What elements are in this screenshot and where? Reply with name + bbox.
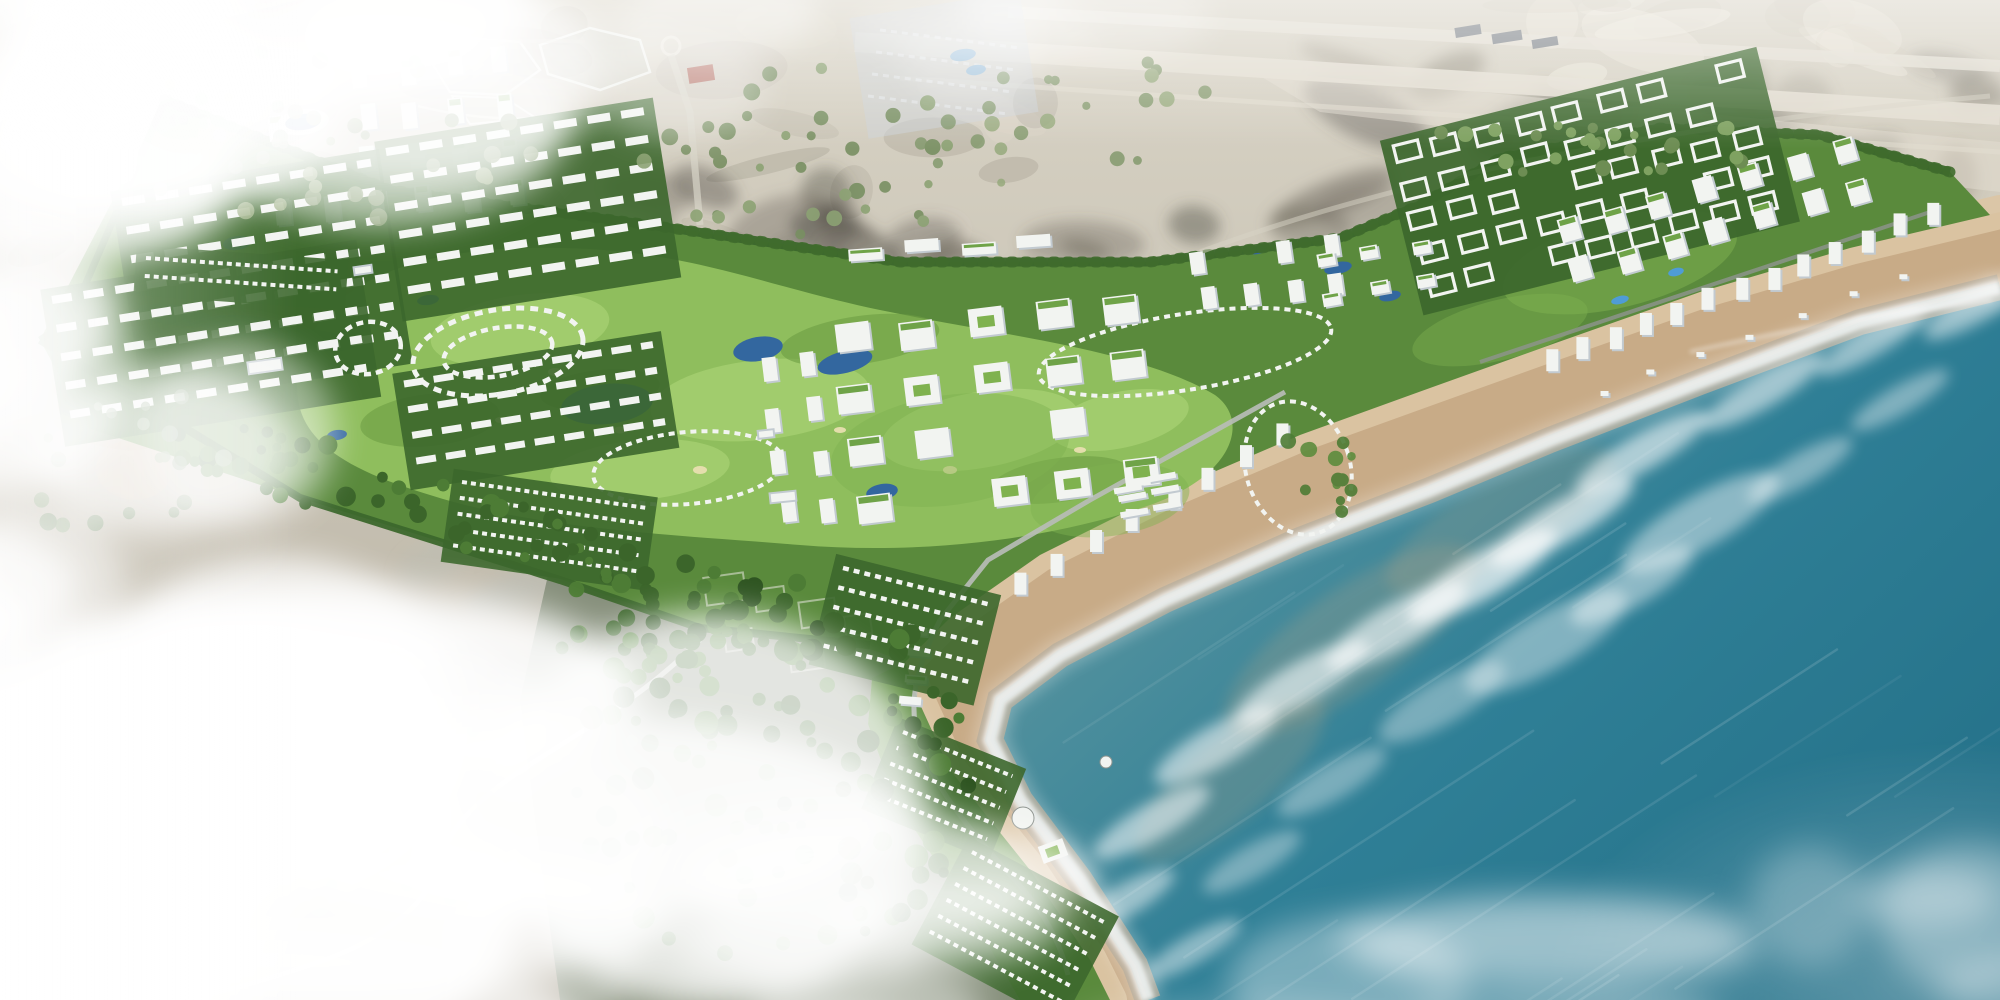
tree [788, 574, 806, 592]
tree [1518, 167, 1528, 177]
tree [712, 211, 725, 224]
building [1014, 573, 1026, 595]
building [1670, 303, 1682, 325]
tree [953, 713, 964, 724]
civic-building [758, 429, 775, 439]
building [1850, 291, 1858, 296]
building [1576, 337, 1588, 359]
building [1646, 369, 1654, 374]
building-courtyard [977, 315, 995, 328]
tree [879, 181, 891, 193]
building [1601, 391, 1609, 396]
building-courtyard [913, 384, 931, 397]
tree [1328, 451, 1343, 466]
building-courtyard [1063, 477, 1081, 490]
tree [1730, 151, 1744, 165]
tree [1644, 166, 1653, 175]
tree [1110, 151, 1125, 166]
tree [839, 189, 851, 201]
building [1016, 234, 1051, 248]
building [813, 450, 830, 476]
sand-bunker [1074, 447, 1086, 453]
building [761, 356, 778, 382]
building [1702, 288, 1714, 310]
tree [927, 686, 940, 699]
tree [1550, 152, 1562, 164]
tree [1280, 433, 1296, 449]
building [914, 427, 951, 459]
aerial-masterplan-rendering: Aerial rendering of a coastal golf-resor… [0, 0, 2000, 1000]
building [1240, 445, 1252, 467]
building [769, 449, 786, 475]
tree [826, 210, 842, 226]
building [1797, 254, 1809, 276]
building [1696, 352, 1704, 357]
tree [997, 179, 1005, 187]
tree [796, 162, 807, 173]
tree [776, 593, 793, 610]
tree [823, 612, 845, 634]
tree [929, 737, 942, 750]
resort-plaza-circle [1012, 807, 1034, 829]
tree [697, 579, 712, 594]
tree [849, 183, 865, 199]
building [1745, 335, 1753, 340]
building [1862, 231, 1874, 253]
tree [924, 180, 932, 188]
scene-svg: Aerial rendering of a coastal golf-resor… [0, 0, 2000, 1000]
tree [708, 566, 721, 579]
tree [676, 554, 695, 573]
tree [1336, 496, 1345, 505]
building [819, 498, 836, 524]
tree [745, 577, 763, 595]
building [1768, 268, 1780, 290]
building [1894, 213, 1906, 235]
corner-mist [1300, 600, 2000, 1000]
tree [743, 200, 756, 213]
tree [806, 207, 820, 221]
tree [1335, 505, 1348, 518]
tree [1300, 484, 1311, 495]
tree [1498, 154, 1514, 170]
tree [640, 584, 653, 597]
golf-clubhouse [770, 491, 797, 504]
building [1050, 407, 1087, 439]
tree [889, 629, 909, 649]
tree [637, 154, 652, 169]
tree [933, 718, 953, 738]
tree [618, 609, 635, 626]
building [1927, 203, 1939, 225]
tree [933, 158, 943, 168]
tree [1331, 473, 1345, 487]
tree [1133, 156, 1142, 165]
building [834, 321, 871, 353]
building [1799, 313, 1807, 318]
resort-pavilion-circle [1100, 756, 1112, 768]
tree [795, 229, 805, 239]
building-courtyard [1001, 484, 1019, 497]
tree [941, 692, 958, 709]
building [1640, 313, 1652, 335]
tree [1595, 160, 1611, 176]
building [1546, 349, 1558, 371]
tree [612, 574, 632, 594]
building [1829, 242, 1841, 264]
building [1090, 530, 1102, 552]
tree [929, 753, 952, 776]
civic-building [354, 265, 373, 275]
building [1899, 274, 1907, 279]
building [799, 351, 816, 377]
tree [569, 582, 585, 598]
tree [1655, 163, 1667, 175]
building-courtyard [983, 371, 1001, 384]
tree [1300, 442, 1315, 457]
building [1201, 468, 1213, 490]
tree [1337, 436, 1350, 449]
tree [1345, 484, 1358, 497]
tree [1347, 452, 1356, 461]
building [806, 396, 823, 422]
tree [688, 591, 701, 604]
sand-bunker [693, 466, 707, 474]
tree [917, 215, 929, 227]
tree [960, 778, 976, 794]
tree [861, 204, 871, 214]
building [1051, 554, 1063, 576]
cloud-puff [705, 842, 869, 984]
tree [756, 164, 764, 172]
building [904, 238, 939, 252]
building [1610, 327, 1622, 349]
building [1736, 278, 1748, 300]
left-haze [0, 0, 300, 1000]
tree [690, 209, 702, 221]
sand-bunker [834, 427, 846, 433]
